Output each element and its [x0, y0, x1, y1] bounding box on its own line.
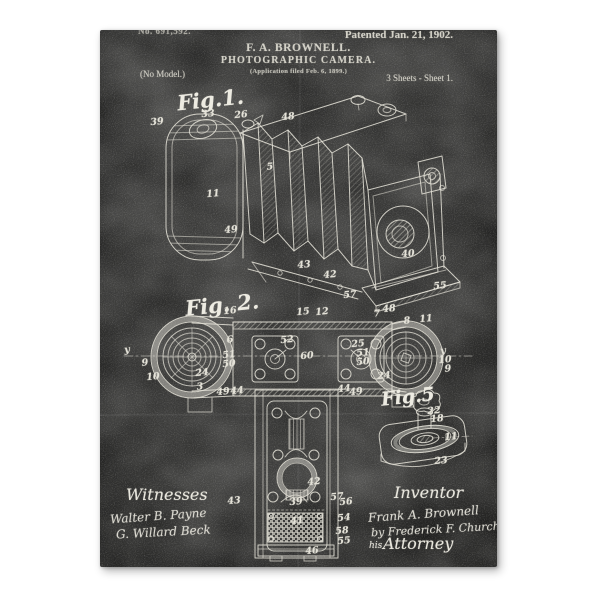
ref-numeral-fig1-42: 42	[323, 269, 337, 281]
ref-numeral-fig5-11: 11	[444, 431, 458, 443]
ref-numeral-section-56: 56	[339, 496, 353, 508]
fig1-drawing	[166, 96, 460, 313]
ref-numeral-section-43: 43	[227, 495, 241, 507]
ref-numeral-fig2-50: 50	[222, 358, 236, 370]
ref-numeral-fig2-9: 9	[141, 357, 149, 369]
ref-numeral-section-55: 55	[337, 535, 351, 547]
ref-numeral-fig5-23: 23	[434, 455, 448, 467]
ref-numeral-fig1-43: 43	[297, 259, 311, 271]
ref-numeral-fig2-44: 44	[230, 385, 244, 397]
ref-numeral-fig1-48: 48	[281, 111, 295, 123]
ref-numeral-fig2-10: 10	[146, 371, 160, 383]
ref-numeral-fig2-12: 12	[315, 306, 329, 318]
ref-numeral-fig1-39: 39	[150, 116, 164, 128]
ref-numeral-fig1-49: 49	[224, 224, 238, 236]
ref-numeral-fig2-24: 24	[195, 367, 209, 379]
ref-numeral-section-46: 46	[305, 545, 319, 557]
ref-numeral-fig2-49: 49	[349, 386, 363, 398]
ref-numeral-fig2-60: 60	[300, 350, 314, 362]
attorney-heading: Attorney	[383, 534, 453, 553]
patent-poster: No. 691,592. Patented Jan. 21, 1902. F. …	[100, 30, 497, 567]
ref-numeral-fig2-9: 9	[444, 363, 452, 375]
ref-numeral-fig1-40: 40	[401, 248, 415, 260]
ref-numeral-fig2-6: 6	[226, 334, 234, 346]
ref-numeral-fig2-7: 7	[373, 308, 381, 320]
ref-numeral-fig2-11: 11	[419, 313, 433, 325]
page-background: No. 691,592. Patented Jan. 21, 1902. F. …	[0, 0, 600, 600]
inventor-heading: Inventor	[394, 483, 463, 502]
ref-numeral-fig1-33: 33	[201, 108, 215, 120]
ref-numeral-fig2-y: y	[124, 344, 130, 355]
ref-numeral-fig1-26: 26	[234, 109, 248, 121]
ref-numeral-fig1-55: 55	[433, 280, 447, 292]
ref-numeral-fig1-11: 11	[206, 188, 220, 200]
ref-numeral-section-42: 42	[307, 476, 321, 488]
ref-numeral-fig5-18: 18	[430, 413, 444, 425]
witnesses-heading: Witnesses	[126, 485, 208, 504]
ref-numeral-section-39: 39	[289, 496, 303, 508]
his-label: his	[369, 541, 382, 551]
ref-numeral-fig2-3: 3	[196, 381, 204, 393]
ref-numeral-section-41: 41	[290, 515, 304, 527]
rear-section-drawing	[255, 390, 338, 561]
ref-numeral-fig2-16: 16	[223, 305, 237, 317]
ref-numeral-fig2-48: 48	[382, 303, 396, 315]
ref-numeral-fig2-8: 8	[403, 315, 411, 327]
ref-numeral-fig1-5: 5	[266, 161, 274, 173]
ref-numeral-fig2-15: 15	[296, 306, 310, 318]
ref-numeral-fig1-57: 57	[343, 289, 357, 301]
ref-numeral-fig2-24: 24	[377, 370, 391, 382]
ref-numeral-fig2-50: 50	[356, 356, 370, 368]
ref-numeral-fig2-52: 52	[280, 334, 294, 346]
ref-numeral-section-54: 54	[337, 512, 351, 524]
ref-numeral-fig2-49: 49	[216, 386, 230, 398]
